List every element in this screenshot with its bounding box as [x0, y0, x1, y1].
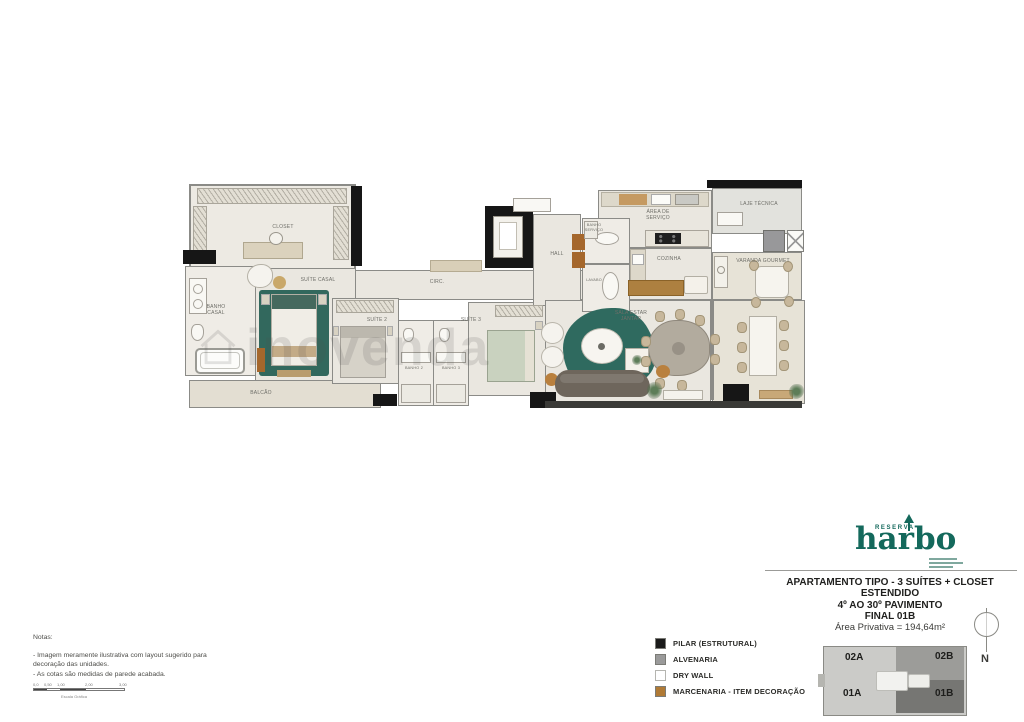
brand-tagline-line: [929, 566, 953, 568]
dining-centerpiece: [672, 342, 685, 355]
servico-sink: [651, 194, 671, 205]
shaft-x-box: [787, 230, 804, 252]
servico-marcenaria: [619, 194, 647, 205]
north-circle: [974, 612, 999, 637]
title-separator: [765, 570, 1017, 571]
label-balcao: BALCÃO: [239, 390, 283, 396]
alvenaria-swatch: [655, 654, 666, 665]
label-banho-servico: BANHO SERVIÇO: [583, 223, 605, 232]
suite-casal-nightstand-right: [318, 294, 327, 305]
varanda-chair: [737, 342, 747, 353]
scale-caption: Escala Gráfica: [61, 694, 87, 699]
elevator-car-rail: [499, 222, 517, 250]
notes-line-1: - Imagem meramente ilustrativa com layou…: [33, 652, 207, 659]
dining-chair: [641, 336, 651, 347]
brand-tagline-line: [929, 558, 957, 560]
label-banho-casal: BANHO CASAL: [203, 304, 229, 316]
suite-casal-nightstand-left: [261, 294, 270, 305]
legend-item-pilar: PILAR (ESTRUTURAL): [655, 637, 757, 649]
label-closet: CLOSET: [239, 224, 327, 230]
floor-plan-sheet: CLOSET SUÍTE CASAL BANHO CASAL BALCÃO SU…: [0, 0, 1024, 722]
floor-plan: CLOSET SUÍTE CASAL BANHO CASAL BALCÃO SU…: [183, 178, 811, 420]
banho3-shower: [436, 384, 466, 403]
legend-item-drywall: DRY WALL: [655, 669, 713, 681]
legend-label: PILAR (ESTRUTURAL): [673, 639, 757, 648]
living-round-chair-dot: [598, 343, 605, 350]
suite2-nightstand-left: [333, 326, 339, 336]
suite2-pillows: [341, 327, 385, 338]
closet-wardrobe-top: [197, 188, 347, 204]
closet-armchair: [247, 264, 273, 288]
kitchen-island-seat: [684, 276, 708, 294]
varanda-chair: [779, 360, 789, 371]
unit-02b-label: 02B: [935, 651, 953, 662]
servico-washer: [675, 194, 699, 205]
brand-logo: RESERVA harbo: [845, 514, 1024, 572]
label-hall: HALL: [539, 251, 575, 257]
legend-label: MARCENARIA - ITEM DECORAÇÃO: [673, 687, 805, 696]
key-plan: 02A 02B 01A 01B: [823, 646, 967, 716]
kitchen-oven: [632, 254, 644, 265]
label-area-servico: ÁREA DE SERVIÇO: [641, 209, 675, 221]
label-circ: CIRC.: [421, 279, 453, 285]
varanda-chair: [779, 320, 789, 331]
scale-bar: [33, 688, 125, 691]
north-label: N: [981, 653, 989, 665]
scale-tick-label: 0,50: [44, 682, 52, 687]
brand-tree-icon: [901, 514, 917, 532]
varanda-chair: [737, 362, 747, 373]
room-corridor: [355, 270, 547, 300]
pillar-left: [183, 250, 216, 264]
notes-block: Notas: - Imagem meramente ilustrativa co…: [33, 630, 263, 710]
banho-casal-basin: [193, 284, 203, 294]
notes-title: Notas:: [33, 634, 53, 641]
closet-wardrobe-right: [333, 206, 349, 260]
scale-tick-label: 0,0: [33, 682, 39, 687]
scale-tick-label: 1,00: [57, 682, 65, 687]
north-indicator: N: [968, 608, 1008, 668]
entry-door-panel: [513, 198, 551, 212]
living-armchair-2: [541, 346, 564, 368]
banho2-vanity: [401, 352, 431, 363]
label-suite-2: SUÍTE 2: [355, 317, 399, 323]
dining-chair: [695, 315, 705, 326]
graphic-scale: 0,0 0,50 1,00 2,00 3,00 Escala Gráfica: [33, 682, 133, 698]
dining-chair: [655, 311, 665, 322]
pillar-alvenaria-varanda: [763, 230, 785, 252]
suite2-wardrobe: [336, 300, 394, 313]
varanda-bench: [759, 390, 793, 399]
keyplan-core-2: [908, 674, 930, 688]
label-sala: SALA ESTAR JANTAR: [611, 310, 651, 322]
varanda-table: [749, 316, 777, 376]
wall-sala-varanda: [710, 300, 714, 400]
suite3-wardrobe: [495, 305, 543, 317]
label-laje-tecnica: LAJE TÉCNICA: [731, 201, 787, 207]
marcenaria-swatch: [655, 686, 666, 697]
title-line-2: ESTENDIDO: [762, 588, 1018, 599]
gourmet-chair: [751, 297, 761, 308]
keyplan-notch: [818, 674, 825, 687]
banho2-shower: [401, 384, 431, 403]
living-armchair-1: [541, 322, 564, 344]
label-banho-2: BANHO 2: [397, 366, 431, 371]
unit-01b-label: 01B: [935, 688, 953, 699]
suite2-nightstand-right: [387, 326, 393, 336]
kitchen-cooktop: [655, 233, 681, 244]
suite3-pillows: [525, 331, 534, 381]
pillar-sala-bottom: [723, 384, 749, 402]
banho2-toilet: [403, 328, 414, 342]
scale-tick-label: 2,00: [85, 682, 93, 687]
console-table: [663, 390, 703, 400]
suite-casal-bench: [277, 370, 311, 377]
lavabo-sink: [602, 272, 619, 300]
suite-casal-marcenaria: [257, 348, 265, 372]
pillar-bottom-1: [373, 394, 397, 406]
label-cozinha: COZINHA: [647, 256, 691, 262]
banho-casal-tub-inner: [200, 352, 240, 369]
label-lavabo: LAVABO: [583, 278, 605, 283]
title-line-1: APARTAMENTO TIPO - 3 SUÍTES + CLOSET: [762, 577, 1018, 588]
suite-casal-throw: [272, 346, 316, 357]
corridor-cabinet: [430, 260, 482, 272]
legend-label: DRY WALL: [673, 671, 713, 680]
banho3-vanity: [436, 352, 466, 363]
closet-mirror: [269, 232, 283, 245]
notes-line-3: - As cotas são medidas de parede acabada…: [33, 671, 166, 678]
brand-tagline-line: [929, 562, 963, 564]
drywall-swatch: [655, 670, 666, 681]
banho-casal-toilet: [191, 324, 204, 341]
varanda-chair: [737, 322, 747, 333]
room-balcao: [189, 380, 381, 408]
legend-label: ALVENARIA: [673, 655, 718, 664]
gourmet-chair: [784, 296, 794, 307]
dining-chair: [710, 334, 720, 345]
gourmet-sink: [717, 266, 725, 274]
varanda-chair: [779, 340, 789, 351]
banho-servico-tub: [595, 232, 619, 245]
dining-chair: [675, 309, 685, 320]
legend-item-marcenaria: MARCENARIA - ITEM DECORAÇÃO: [655, 685, 805, 697]
legend-item-alvenaria: ALVENARIA: [655, 653, 718, 665]
scale-tick-label: 3,00: [119, 682, 127, 687]
dining-chair: [710, 354, 720, 365]
pilar-swatch: [655, 638, 666, 649]
unit-02a-label: 02A: [845, 652, 863, 663]
pillar-top-right-bar: [707, 180, 802, 188]
room-laje-tecnica: [712, 188, 802, 234]
label-suite-3: SUÍTE 3: [451, 317, 491, 323]
label-banho-3: BANHO 3: [434, 366, 468, 371]
banho-casal-basin-2: [193, 299, 203, 309]
laje-equipment: [717, 212, 743, 226]
unit-01a-label: 01A: [843, 688, 861, 699]
living-pouf-2: [656, 365, 670, 378]
pillar-closet-right: [351, 186, 362, 266]
suite-casal-pillows: [272, 295, 316, 309]
living-sofa-cushions: [560, 374, 644, 383]
notes-line-2: decoração das unidades.: [33, 661, 109, 668]
dining-chair: [641, 356, 651, 367]
banho3-toilet: [439, 328, 450, 342]
parapet-wall: [545, 401, 802, 408]
label-suite-casal: SUÍTE CASAL: [287, 277, 349, 283]
closet-ottoman: [273, 276, 286, 289]
label-varanda-gourmet-top: VARANDA GOURMET: [725, 258, 801, 264]
keyplan-core: [876, 671, 908, 691]
kitchen-marcenaria-counter: [628, 280, 684, 296]
